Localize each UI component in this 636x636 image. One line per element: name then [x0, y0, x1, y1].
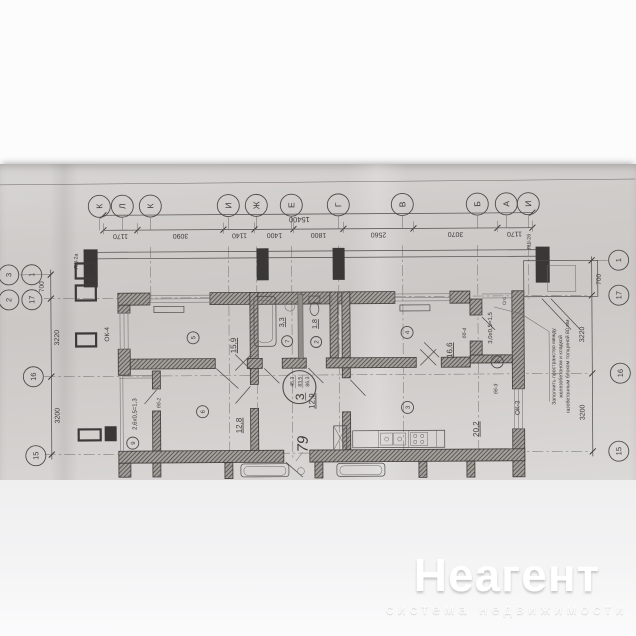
radiator: [400, 305, 430, 311]
axis-letter: В: [397, 201, 407, 207]
balcony-area: 2,6х0,5=1,3: [132, 398, 138, 430]
axis-centerline-v: [403, 245, 404, 459]
balcony-area: 3,0х0,5=1,5: [488, 312, 494, 344]
axis-number: 15: [614, 447, 623, 455]
watermark-subtitle: система недвижимости: [382, 601, 632, 617]
room-area: 16,6: [445, 342, 454, 358]
axis-grid-right: 1 17 16 15 700 3220 3200: [579, 250, 631, 461]
dimension-chain-row: 1170 3090 1140 1400 1800 2560 3070 1170: [100, 221, 535, 240]
axis-letter: К: [145, 203, 155, 208]
stamp-rooms: 3: [293, 393, 307, 400]
note-line: газобетонным блоком толщиной 80 мм: [564, 319, 572, 413]
note-line: Заполнить пространство между: [551, 328, 557, 405]
axis-letter: Л: [117, 203, 127, 209]
axis-number: 17: [614, 291, 623, 299]
axis-letter: Б: [472, 201, 482, 207]
axis-number: 1: [614, 258, 623, 262]
axis-letter: И: [223, 202, 233, 208]
axis-letter: А: [501, 201, 511, 207]
photo-of-floorplan: К Л К И Ж Е Г В Б А И: [0, 0, 636, 636]
dimension-label: 1170: [507, 230, 522, 237]
lower-apartment-fragment: [241, 463, 385, 477]
axis-letter: К: [94, 204, 104, 209]
room-area: 15,9: [229, 337, 238, 353]
dimension-label: 700: [39, 281, 46, 292]
dimension-label: 3070: [448, 230, 464, 237]
axis-centerline-v: [292, 246, 293, 460]
watermark: Неагент система недвижимости: [382, 552, 632, 617]
dimension-label: 1140: [232, 231, 247, 238]
dimension-label: 3200: [580, 404, 587, 420]
load-bearing-walls: [118, 291, 525, 479]
axis-number: 15: [31, 452, 40, 460]
axis-letter: Е: [286, 202, 296, 208]
dimension-label: 3220: [54, 330, 61, 346]
dimension-label: 3220: [579, 326, 586, 342]
door-mark: бб-4: [462, 328, 468, 339]
sheet-border-line: [0, 179, 635, 185]
kitchen-sink: [381, 433, 393, 445]
note-line: железобетоном и кладкой: [557, 335, 564, 398]
axis-number: 17: [27, 296, 36, 304]
window-mark: ОК-4: [104, 327, 111, 342]
dimension-label: 3200: [55, 408, 62, 424]
entrance-porch: [524, 260, 598, 329]
axis-number: 3: [4, 273, 13, 277]
axis-number: 2: [4, 298, 13, 302]
balcony-parapet: [84, 247, 550, 288]
axis-number: 16: [616, 369, 625, 377]
sink: [297, 468, 304, 475]
dimension-label: 1400: [267, 231, 283, 238]
stove: [411, 432, 428, 445]
stamp-total-area: 86,3: [305, 376, 311, 386]
toilet-bowl: [310, 302, 319, 315]
dimension-label: 1800: [311, 231, 327, 238]
window-mark: ЛШ-2б: [526, 234, 532, 250]
axis-grid-left: 3 1 2 17 16 15 700 3220 3200: [0, 265, 62, 466]
door-mark: бб-2: [156, 398, 162, 409]
axis-number: 1: [27, 273, 36, 277]
photo-margin-bottom: Неагент система недвижимости: [0, 480, 636, 636]
radiator: [154, 306, 184, 312]
stair-shaft-sections: [76, 263, 117, 441]
dimension-label: 15400: [289, 215, 310, 224]
dimension-label: 2560: [371, 231, 387, 238]
apartment-number: 79: [295, 435, 312, 452]
axis-letter: Ж: [251, 201, 261, 209]
apartment-stamp: 3 45,3 83,5 86,3 79: [283, 371, 317, 462]
axis-grid-top: К Л К И Ж Е Г В Б А И: [88, 193, 539, 231]
stamp-living-area: 45,3: [290, 376, 296, 386]
watermark-title: Неагент: [382, 552, 632, 598]
axis-number: 16: [29, 373, 38, 381]
lintel-mark: Сп1: [502, 296, 507, 305]
dimension-label: 700: [596, 273, 603, 284]
axis-letter: Г: [333, 202, 343, 207]
window-mark: ОК-3: [514, 400, 521, 415]
room-area: 1,8: [312, 319, 319, 329]
door-mark: бб-3: [493, 384, 499, 395]
window-symbols: [118, 291, 525, 451]
room-area: 20,2: [472, 421, 481, 437]
room-area: 3,3: [279, 317, 286, 327]
window-mark: ЛШ-2а: [74, 254, 80, 270]
room-area: 12,8: [235, 417, 244, 433]
dimension-label: 3090: [173, 232, 189, 239]
dimension-label: 1170: [113, 232, 128, 239]
axis-letter: И: [523, 201, 533, 207]
